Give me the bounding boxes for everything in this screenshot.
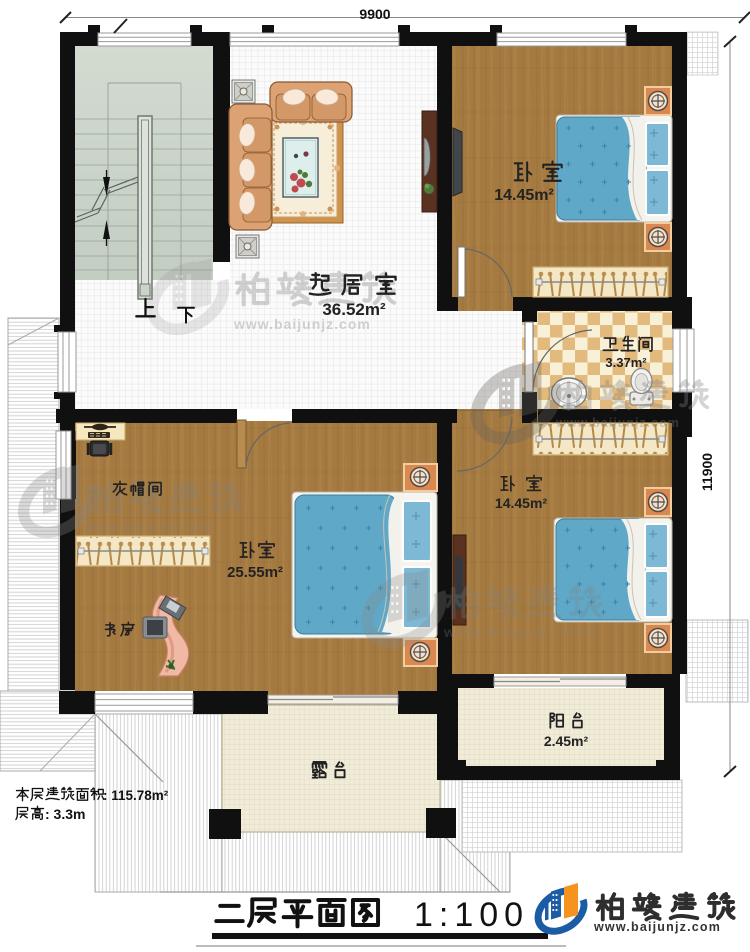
- svg-text:3.37m²: 3.37m²: [605, 355, 647, 370]
- svg-text:www.baijunjz.com: www.baijunjz.com: [443, 624, 597, 640]
- svg-text:25.55m²: 25.55m²: [227, 564, 283, 581]
- svg-text:1:100: 1:100: [414, 896, 529, 934]
- svg-text:11900: 11900: [699, 453, 715, 491]
- svg-text:www.baijunjz.com: www.baijunjz.com: [555, 416, 680, 430]
- svg-text:: 3.3m: : 3.3m: [45, 806, 85, 822]
- svg-text:9900: 9900: [359, 6, 390, 22]
- svg-text:www.baijunjz.com: www.baijunjz.com: [593, 920, 721, 934]
- svg-text:: 115.78m²: : 115.78m²: [103, 788, 169, 803]
- svg-text:2.45m²: 2.45m²: [544, 733, 589, 749]
- svg-text:36.52m²: 36.52m²: [322, 300, 386, 319]
- svg-text:14.45m²: 14.45m²: [494, 187, 554, 204]
- svg-text:14.45m²: 14.45m²: [495, 495, 547, 511]
- svg-text:www.baijunjz.com: www.baijunjz.com: [85, 519, 214, 534]
